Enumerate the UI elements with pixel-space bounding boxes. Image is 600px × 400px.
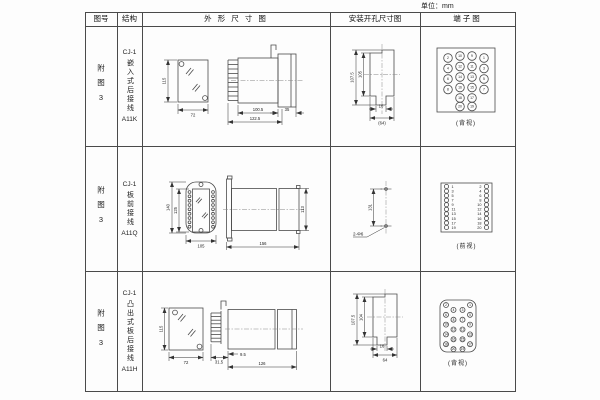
- dimensions: 115 72 100.5 122.5 35: [162, 60, 305, 125]
- dim-label: 105: [198, 244, 206, 249]
- dim-label: 140: [166, 203, 171, 211]
- svg-text:20: 20: [452, 347, 456, 351]
- dim-label: 104: [359, 313, 364, 321]
- dimensions: 140 125 105 156 113: [166, 182, 310, 250]
- front-view: [178, 60, 208, 102]
- structure-type: 嵌入式后接线: [125, 59, 135, 113]
- terminal-numbers: 21091 412113 614135 816157 1817 2019: [447, 54, 485, 108]
- svg-text:4: 4: [453, 308, 455, 312]
- svg-text:18: 18: [458, 96, 462, 100]
- dimensions: 115 72 31.5 9.5 126: [159, 308, 297, 370]
- svg-text:9: 9: [452, 203, 454, 207]
- dim-label: 113: [300, 205, 305, 212]
- svg-text:15: 15: [452, 217, 456, 221]
- svg-text:16: 16: [477, 217, 481, 221]
- dim-label: 72: [191, 113, 196, 118]
- dim-label: 115: [162, 77, 167, 84]
- mounting-drawing-a11k: 107.5 105 16 (64): [330, 26, 418, 131]
- hole-spec-label: 2-Φ6: [353, 232, 364, 237]
- svg-text:15: 15: [470, 86, 474, 90]
- svg-text:14: 14: [444, 333, 448, 337]
- terminal-drawing-a11k: 21091 412113 614135 816157 1817 2019 (背视…: [418, 26, 515, 131]
- structure-code: A11H: [122, 366, 138, 373]
- svg-text:1: 1: [452, 185, 454, 189]
- svg-text:10: 10: [458, 54, 462, 58]
- svg-text:12: 12: [458, 65, 462, 69]
- svg-text:7: 7: [452, 199, 454, 203]
- svg-text:2: 2: [447, 56, 449, 60]
- svg-text:8: 8: [453, 318, 455, 322]
- fig-no-cell: 附图3: [85, 26, 117, 146]
- structure-model: CJ-1: [123, 49, 137, 56]
- grid-line: [85, 271, 515, 272]
- svg-text:20: 20: [458, 105, 462, 109]
- dim-label: 72: [184, 360, 189, 365]
- svg-text:16: 16: [458, 86, 462, 90]
- svg-text:11: 11: [452, 208, 456, 212]
- svg-text:3: 3: [462, 308, 464, 312]
- structure-model: CJ-1: [123, 181, 137, 188]
- structure-cell: CJ-1 板前接线 A11Q: [117, 146, 142, 271]
- svg-text:5: 5: [469, 313, 471, 317]
- view-label: (背视): [448, 359, 468, 367]
- fig-no-label: 附图3: [96, 64, 107, 109]
- dim-label: 131: [368, 203, 373, 211]
- svg-text:2: 2: [445, 303, 447, 307]
- grid-line: [85, 146, 515, 147]
- unit-label: 单位：mm: [421, 1, 454, 11]
- view-label: (背视): [456, 119, 476, 127]
- svg-text:5: 5: [483, 77, 485, 81]
- svg-text:9: 9: [469, 323, 471, 327]
- view-label: (前视): [457, 242, 477, 250]
- side-view: [211, 301, 303, 349]
- dimensions: 107.5 105 16 (64): [350, 50, 395, 126]
- svg-text:10: 10: [477, 203, 481, 207]
- structure-model: CJ-1: [123, 290, 137, 297]
- dim-label: (64): [378, 121, 386, 126]
- front-view: [169, 308, 203, 350]
- structure-cell: CJ-1 嵌入式后接线 A11K: [117, 26, 142, 146]
- structure-type: 板前接线: [125, 191, 135, 227]
- svg-text:18: 18: [444, 342, 448, 346]
- dim-label: 64: [383, 358, 388, 363]
- dim-label: 31.5: [215, 360, 224, 365]
- svg-text:11: 11: [470, 65, 474, 69]
- outline-drawing-a11h: 115 72 31.5 9.5 126: [143, 281, 330, 376]
- terminal-plate: [437, 48, 495, 112]
- svg-text:6: 6: [445, 313, 447, 317]
- svg-text:12: 12: [452, 328, 456, 332]
- dim-label: 100.5: [253, 107, 264, 112]
- svg-text:9: 9: [471, 54, 473, 58]
- terminal-drawing-a11h: 26101418 48121620 37111519 1591317 (背视): [418, 281, 515, 371]
- svg-text:17: 17: [470, 96, 474, 100]
- col-header-structure: 结构: [117, 12, 142, 26]
- dim-label: 156: [260, 241, 268, 246]
- dim-label: 105: [358, 70, 363, 78]
- svg-text:15: 15: [461, 337, 465, 341]
- front-view: [186, 182, 216, 233]
- svg-text:17: 17: [468, 342, 472, 346]
- side-view: [228, 45, 303, 107]
- svg-text:14: 14: [477, 212, 481, 216]
- svg-text:7: 7: [483, 88, 485, 92]
- grid-line: [85, 391, 515, 392]
- drill-holes: [381, 181, 392, 234]
- fig-no-label: 附图3: [96, 309, 107, 354]
- side-view: [223, 176, 305, 241]
- terminal-holes: [444, 52, 489, 111]
- structure-code: A11Q: [121, 230, 137, 237]
- svg-text:13: 13: [470, 75, 474, 79]
- svg-text:16: 16: [452, 337, 456, 341]
- svg-text:3: 3: [483, 67, 485, 71]
- svg-text:1: 1: [469, 303, 471, 307]
- col-header-outline: 外 形 尺 寸 图: [142, 12, 330, 26]
- svg-text:7: 7: [462, 318, 464, 322]
- svg-text:4: 4: [447, 67, 449, 71]
- fig-no-cell: 附图3: [85, 146, 117, 271]
- svg-text:2: 2: [479, 185, 481, 189]
- terminal-drawing-a11q: 135791113151719 2468101214161820 (前视): [418, 155, 515, 255]
- svg-text:1: 1: [483, 56, 485, 60]
- manual-page: 单位：mm 图号 结构 外 形 尺 寸 图 安装开孔尺寸图 端子图 附图3 CJ…: [0, 0, 600, 400]
- dim-label: 16: [379, 104, 384, 109]
- svg-text:18: 18: [477, 221, 481, 225]
- dimensions: 107.5 104 16 64: [351, 294, 398, 363]
- svg-text:19: 19: [461, 347, 465, 351]
- svg-text:8: 8: [447, 88, 449, 92]
- svg-text:19: 19: [470, 105, 474, 109]
- svg-text:8: 8: [479, 199, 481, 203]
- svg-text:11: 11: [461, 328, 465, 332]
- dim-label: 126: [259, 361, 267, 366]
- structure-type: 凸出式板后接线: [125, 300, 135, 363]
- svg-text:13: 13: [468, 333, 472, 337]
- dimensions: 131 2-Φ6: [353, 189, 385, 237]
- fig-no-label: 附图3: [96, 186, 107, 231]
- grid-line: [515, 12, 516, 392]
- col-header-mounting: 安装开孔尺寸图: [330, 12, 420, 26]
- col-header-fig-no: 图号: [85, 12, 117, 26]
- svg-text:14: 14: [458, 75, 462, 79]
- dim-label: 125: [173, 206, 178, 214]
- col-header-terminal: 端子图: [420, 12, 515, 26]
- svg-text:5: 5: [452, 194, 454, 198]
- svg-text:20: 20: [477, 226, 481, 230]
- dim-label: 35: [285, 107, 290, 112]
- dim-label: 16: [380, 344, 385, 349]
- structure-cell: CJ-1 凸出式板后接线 A11H: [117, 271, 142, 391]
- svg-text:4: 4: [479, 190, 481, 194]
- mounting-drawing-a11q: 131 2-Φ6: [330, 155, 418, 250]
- outline-drawing-a11k: 115 72 100.5 122.5 35: [143, 26, 330, 131]
- svg-text:6: 6: [479, 194, 481, 198]
- svg-text:3: 3: [452, 190, 454, 194]
- svg-text:17: 17: [452, 221, 456, 225]
- dim-label: 107.5: [350, 72, 355, 83]
- structure-code: A11K: [122, 116, 137, 123]
- fig-no-cell: 附图3: [85, 271, 117, 391]
- dim-label: 122.5: [250, 116, 261, 121]
- svg-text:13: 13: [452, 212, 456, 216]
- dim-label: 9.5: [240, 352, 246, 357]
- svg-text:19: 19: [452, 226, 456, 230]
- dim-label: 107.5: [351, 314, 356, 325]
- dim-label: 115: [159, 325, 164, 332]
- svg-text:6: 6: [447, 77, 449, 81]
- mounting-drawing-a11h: 107.5 104 16 64: [330, 281, 418, 366]
- svg-text:10: 10: [444, 323, 448, 327]
- svg-text:12: 12: [477, 208, 481, 212]
- outline-drawing-a11q: 140 125 105 156 113: [143, 155, 330, 255]
- terminal-numbers: 135791113151719 2468101214161820: [452, 185, 482, 230]
